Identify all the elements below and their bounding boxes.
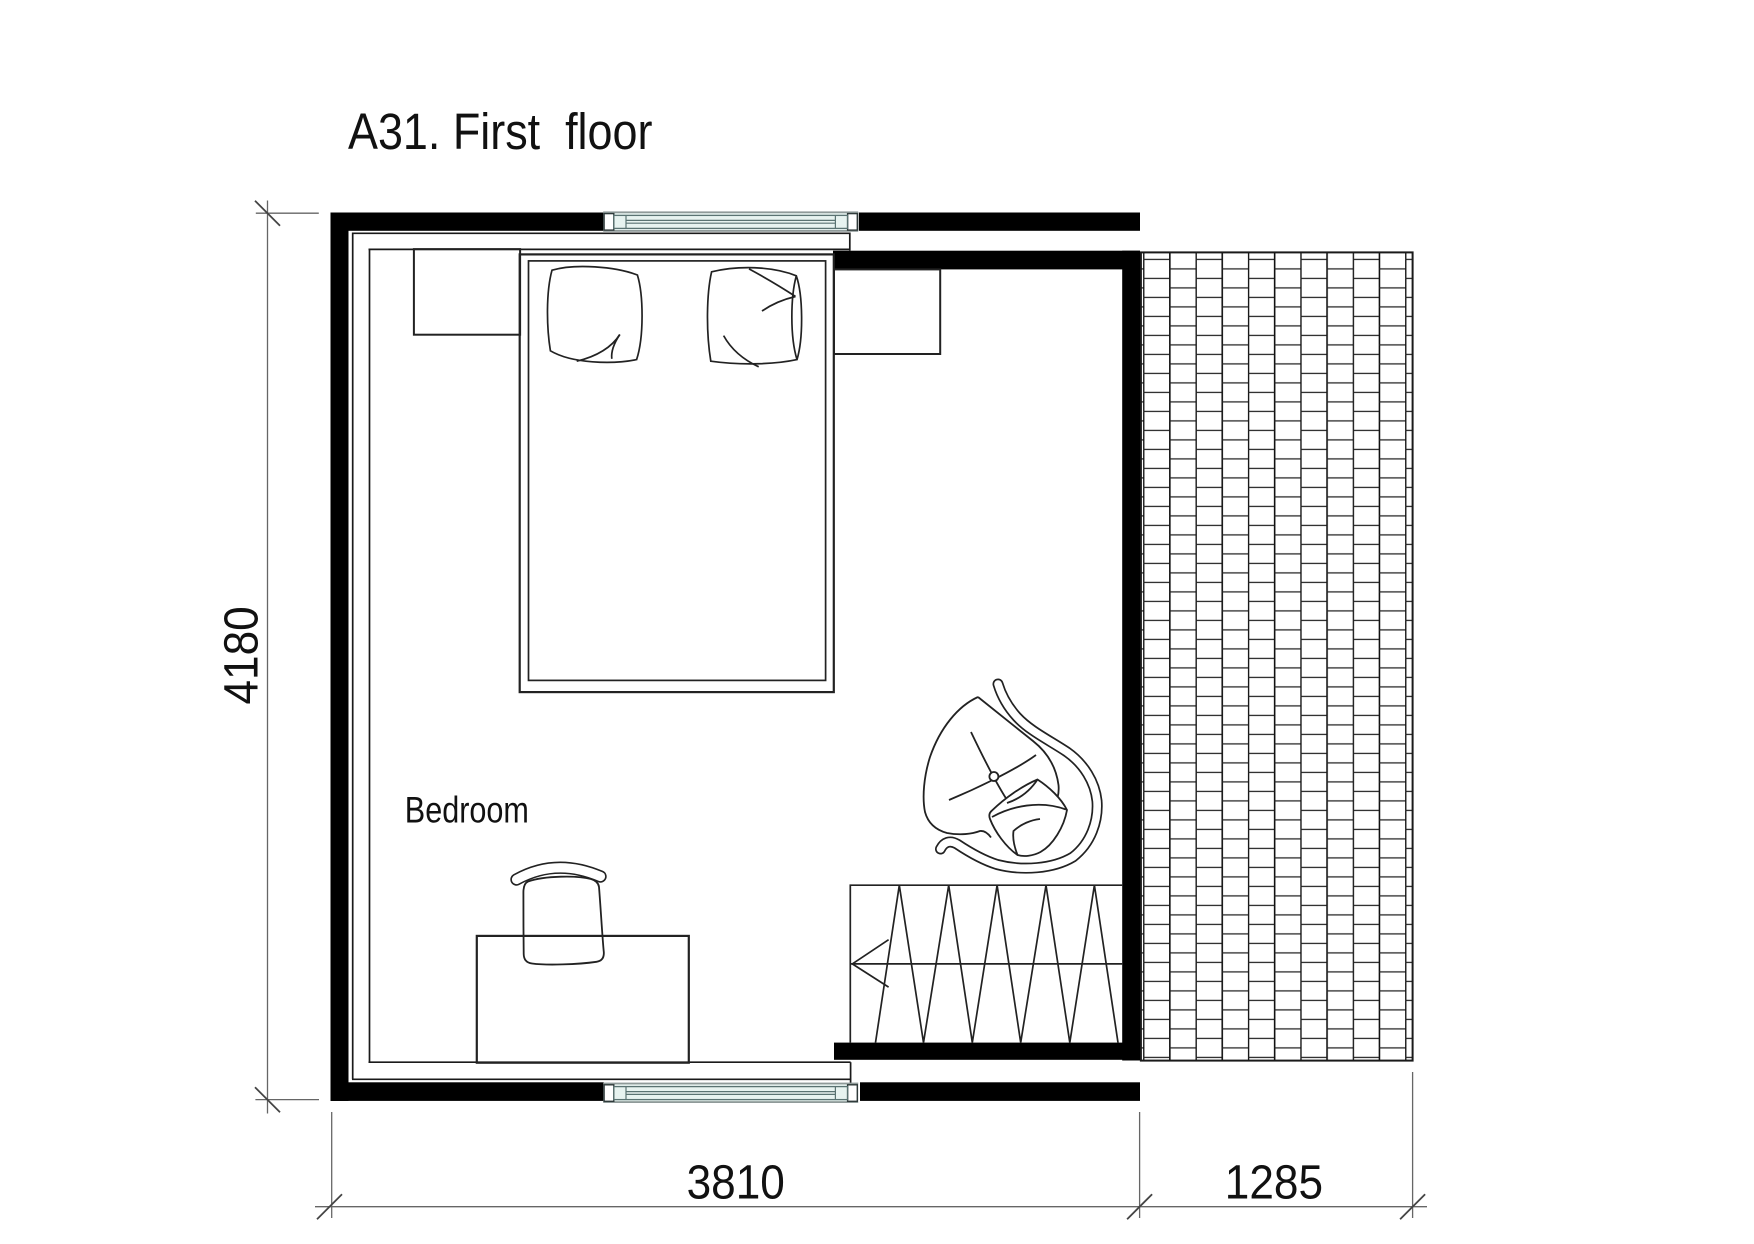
svg-text:3810: 3810: [687, 1155, 785, 1209]
svg-text:Bedroom: Bedroom: [405, 790, 529, 831]
svg-text:A31. First floor: A31. First floor: [348, 104, 652, 160]
svg-text:1285: 1285: [1225, 1155, 1323, 1209]
svg-text:4180: 4180: [214, 606, 268, 704]
